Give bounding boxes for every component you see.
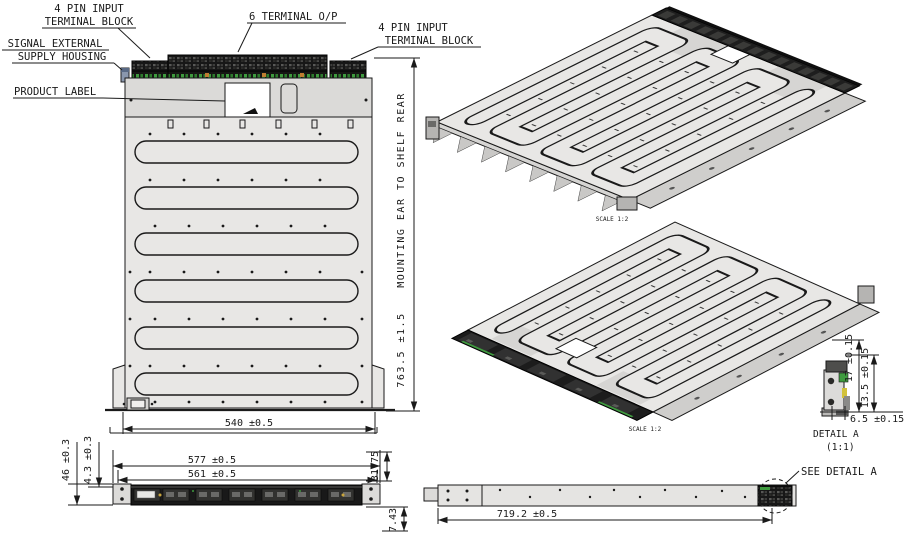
iso-bottom-ear-right — [858, 286, 874, 303]
side-body — [438, 485, 796, 506]
terminal-block-center — [168, 55, 327, 72]
front-ear-right — [362, 484, 380, 504]
iso-view-top: SCALE 1:2 — [412, 6, 882, 223]
dim-length: 719.2 ±0.5 — [497, 509, 557, 520]
dim-flange: 4.3 ±0.3 — [83, 436, 94, 484]
rear-band — [125, 78, 372, 117]
main-top-view: 540 ±0.5 763.5 ±1.5 MOUNTING EAR TO SHEL… — [2, 3, 481, 434]
dim-ear-height: 31.75 — [370, 451, 381, 481]
drawing-svg: 540 ±0.5 763.5 ±1.5 MOUNTING EAR TO SHEL… — [0, 0, 905, 540]
detail-dim-135: 13.5 ±0.15 — [860, 348, 871, 408]
iso-top-ear-front — [617, 197, 637, 210]
callout-input-left-1: 4 PIN INPUT — [54, 3, 124, 15]
mounting-ear-right — [372, 365, 384, 408]
dim-inner-width: 561 ±0.5 — [188, 469, 236, 480]
dim-depth-value: 763.5 ±1.5 — [396, 312, 407, 387]
detail-a-view: 17 ±0.15 13.5 ±0.15 6.5 ±0.15 DETAIL A (… — [813, 334, 904, 453]
side-view: SEE DETAIL A 719.2 ±0.5 — [424, 466, 878, 524]
front-unit — [113, 484, 380, 505]
callout-product-label: PRODUCT LABEL — [14, 86, 96, 98]
detail-dim-17: 17 ±0.15 — [844, 334, 855, 382]
corner-connector — [123, 398, 154, 410]
callout-output-center: 6 TERMINAL O/P — [249, 11, 338, 23]
dim-overall-width: 577 ±0.5 — [188, 455, 236, 466]
iso-view-bottom: SCALE 1:2 — [452, 222, 879, 433]
detail-title: DETAIL A — [813, 429, 859, 440]
detail-scale: (1:1) — [826, 442, 855, 453]
callout-input-right-2: TERMINAL BLOCK — [385, 35, 474, 47]
dim-width-540: 540 ±0.5 — [123, 412, 375, 434]
dim-depth-note: MOUNTING EAR TO SHELF REAR — [396, 92, 407, 288]
terminal-block-right — [330, 61, 366, 72]
iso-top-scale: SCALE 1:2 — [596, 216, 629, 223]
callout-supply-2: SUPPLY HOUSING — [18, 51, 107, 63]
engineering-drawing-sheet: 540 ±0.5 763.5 ±1.5 MOUNTING EAR TO SHEL… — [0, 0, 905, 540]
front-ear-left — [113, 484, 131, 504]
mounting-ear-left — [113, 365, 125, 408]
iso-bottom-scale: SCALE 1:2 — [629, 426, 662, 433]
callout-input-left-2: TERMINAL BLOCK — [45, 16, 134, 28]
side-tab — [424, 488, 438, 501]
dim-depth-763: 763.5 ±1.5 MOUNTING EAR TO SHELF REAR — [374, 58, 420, 411]
callout-input-right-1: 4 PIN INPUT — [378, 22, 448, 34]
dim-height: 46 ±0.3 — [61, 439, 72, 481]
terminal-block-left — [132, 61, 168, 72]
dim-under: 7.43 — [388, 508, 399, 532]
callout-supply-1: SIGNAL EXTERNAL — [8, 38, 103, 50]
dim-width-label: 540 ±0.5 — [225, 418, 273, 429]
shelf-top-panel — [105, 117, 395, 410]
iso-top-ear-left — [426, 117, 439, 139]
detail-dim-65: 6.5 ±0.15 — [850, 414, 904, 425]
see-detail-note: SEE DETAIL A — [801, 466, 878, 478]
front-elevation-view: 577 ±0.5 561 ±0.5 46 ±0.3 4.3 ±0.3 — [61, 427, 408, 532]
